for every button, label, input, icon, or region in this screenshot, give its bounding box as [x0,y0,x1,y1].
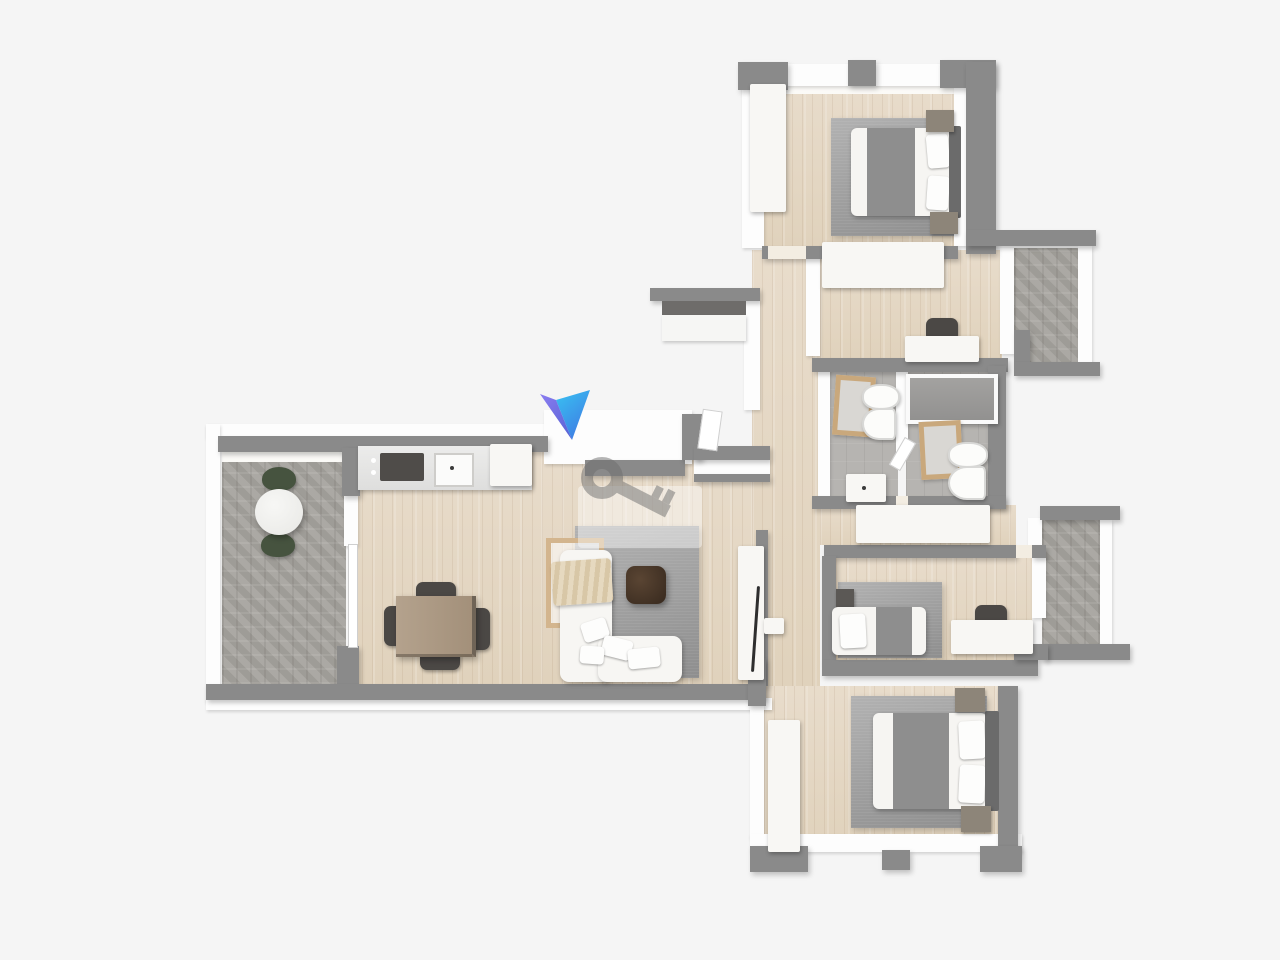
bedroom-3-desk [951,620,1033,654]
sofa-cushion [579,645,604,665]
cooktop-knob [371,458,376,463]
bedroom-3-bottom-wall [822,660,1038,676]
bathroom-2-toilet [948,466,986,500]
pillow [839,613,867,648]
bedroom-3-right-wall [1032,556,1046,618]
bedroom-1-door-threshold [768,246,806,259]
terrace-chair-north [262,467,296,491]
study-right-wall [1000,248,1014,354]
bathroom-2-bidet [948,442,988,468]
bathroom-1-bidet [862,384,900,410]
sink-drain [450,466,454,470]
terrace-divider-lower [344,494,358,546]
cooktop-knob [371,470,376,475]
connector-bottom-wall [824,545,1016,558]
bedroom-2-bottom-wall-right [980,846,1022,872]
bedroom-1-nightstand-north [926,110,954,132]
bedroom-1-right-wall [966,62,996,254]
sofa-cushion [627,646,661,669]
study-left-wall [806,250,820,356]
key-logo-watermark [560,442,710,562]
bedroom-1-double-bed [851,126,961,218]
bedroom-1-nightstand-south [930,212,958,234]
balcony-2-left-upper-wall [1028,518,1042,548]
built-in-closet-interior [662,301,746,315]
balcony-2-right-wall [1100,520,1112,646]
bed-blanket [867,128,915,216]
bedroom-3-single-bed [832,607,928,657]
balcony-1-bottom-wall [1014,362,1100,376]
balcony-2-top-wall [1040,506,1120,520]
left-wing-bottom-wall [206,684,766,700]
kitchen-sink [434,453,474,487]
bedroom-3-door-threshold [1016,545,1032,558]
terrace-living-stub [337,646,359,686]
cooktop [380,453,424,481]
pillow [926,175,950,210]
bathroom-1-sink-vanity [846,474,886,502]
closet-top-band [650,288,760,301]
bathroom-1-toilet [862,408,896,440]
bedroom-2-nightstand-south [961,806,991,832]
wall-shelf-stub [764,618,784,634]
balcony-2-corner-stub [1032,545,1046,558]
vanity-sink-drain [862,486,866,490]
bedroom-2-right-wall [998,686,1018,858]
balcony-1-left-stub [1014,330,1030,364]
terrace-glass-door [348,544,358,648]
hallway-wardrobe-cabinet [856,505,990,543]
built-in-closet-front [662,315,746,341]
bedroom-2-nightstand-north [955,688,985,712]
pillow [958,720,986,759]
blanket-fold [915,128,925,216]
study-sideboard [822,242,944,288]
headboard [949,126,961,218]
camera-direction-marker [540,388,592,442]
bedroom-1-top-wall-mid [848,60,876,86]
bedroom-2-left-wall [750,704,764,838]
balcony-2-bottom-wall [1044,644,1130,660]
pillow [926,133,951,169]
bed-blanket [876,607,912,655]
terrace-round-table [255,489,303,535]
pillow [958,764,986,803]
bedroom-2-double-bed [873,711,999,811]
coffee-table [626,566,666,604]
terrace-inner-wall-face [222,452,346,462]
hallway-left-wall [744,300,760,410]
balcony-1-right-wall [1078,246,1092,366]
bedroom-2-bottom-wall-mid [882,850,910,870]
balcony-2-floor [1042,520,1104,646]
bedroom-2-wardrobe [768,720,800,852]
terrace-chair-south [261,533,295,557]
kitchen-tall-unit [490,444,532,486]
headboard [985,711,999,811]
bathroom-left-wall [818,366,830,496]
bathroom-2-shower [906,374,998,424]
throw-blanket [551,558,614,606]
study-desk [905,336,979,362]
dining-table [396,596,476,657]
bedroom-1-wardrobe [750,84,786,212]
floor-plan [0,0,1280,960]
outer-band-left [206,424,220,702]
bed-blanket [893,713,949,809]
balcony-1-top-wall [966,230,1096,246]
